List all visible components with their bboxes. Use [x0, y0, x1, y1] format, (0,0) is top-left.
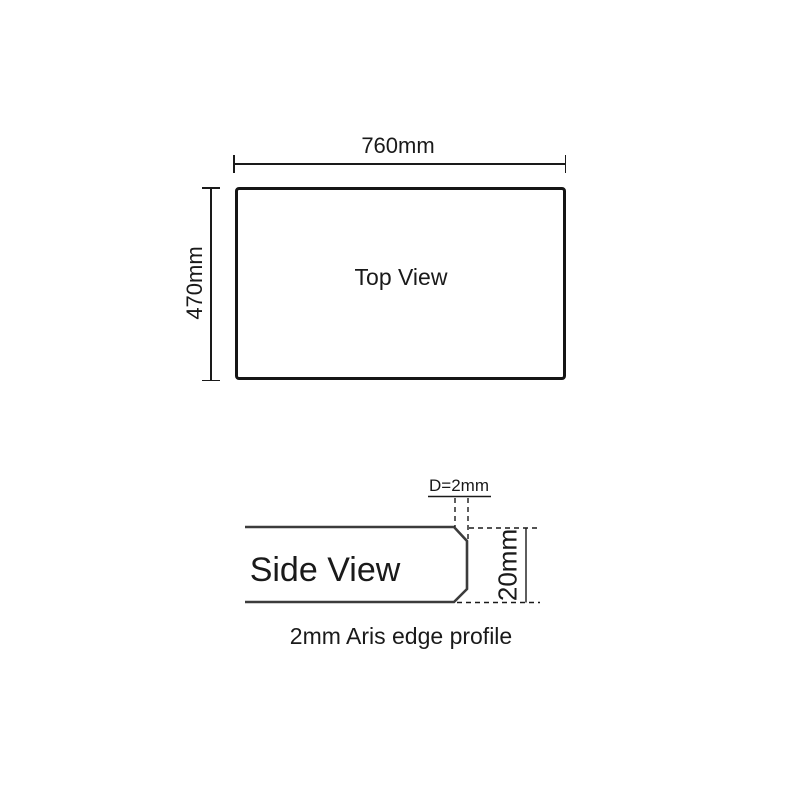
- aris-depth-label: D=2mm: [409, 477, 509, 496]
- edge-profile-caption: 2mm Aris edge profile: [251, 624, 551, 649]
- side-view-label: Side View: [225, 552, 425, 589]
- side-view-linework: [0, 0, 800, 800]
- thickness-dim-label: 20mm: [494, 529, 523, 601]
- technical-drawing-canvas: 760mm 470mm Top View D=2m: [0, 0, 800, 800]
